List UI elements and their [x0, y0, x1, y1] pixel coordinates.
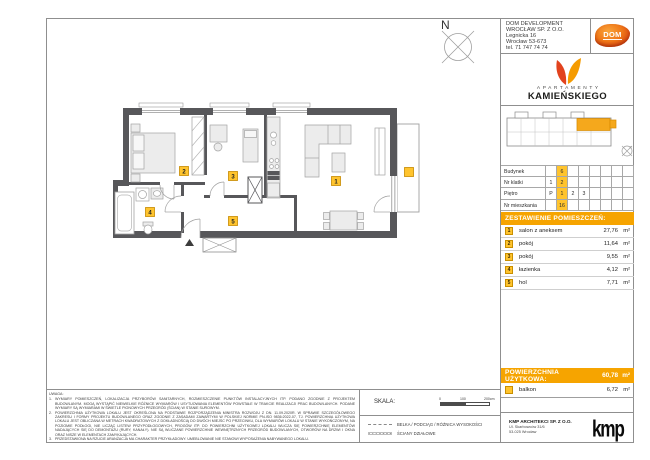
dom-logo-text: DOM: [603, 31, 621, 41]
info-panel: DOM DEVELOPMENT WROCŁAW SP. Z O.O. Legni…: [500, 18, 634, 443]
legend-item-belka: BELKA / PODCIĄG / RÓŻNICA WYSOKOŚCI: [368, 420, 500, 429]
unit-id-table: Budynek 6 Nr klatki 1 2 Piętro P 1 2 3 N…: [501, 165, 634, 212]
room-row-pokoj2: 2 pokój 11,64 m²: [501, 238, 634, 251]
notes-block: UWAGA: 1. WYMIARY POMIESZCZEŃ, LOKALIZAC…: [46, 389, 360, 443]
developer-header: DOM DEVELOPMENT WROCŁAW SP. Z O.O. Legni…: [501, 18, 634, 53]
table-row-mieszkanie: Nr mieszkania 16: [501, 200, 634, 212]
installation-shaft: [248, 177, 262, 203]
room-row-salon: 1 salon z aneksem 27,76 m²: [501, 225, 634, 238]
room-row-pokoj3: 3 pokój 9,55 m²: [501, 251, 634, 264]
furniture: [115, 117, 385, 234]
wardrobe: [192, 117, 204, 175]
note-item-3: 3. PRZEDSTAWIONA NA RZUCIE ARANŻACJA MA …: [49, 437, 355, 441]
entrance-arrow-icon: [185, 239, 194, 246]
usable-area-bar: POWIERZCHNIA UŻYTKOWA: 60,78 m²: [501, 368, 634, 383]
windows: [139, 103, 310, 115]
marker-salon: 1: [332, 177, 341, 186]
siteplan-unit-highlight: [577, 119, 616, 131]
legend-item-sciany: ŚCIANY DZIAŁOWE: [368, 429, 500, 438]
notes-title: UWAGA:: [49, 392, 355, 396]
dashed-line-swatch: [368, 424, 392, 425]
marker-balkon: [405, 168, 414, 177]
dom-logo-icon: DOM: [595, 24, 630, 47]
marker-lazienka: 4: [146, 208, 155, 217]
siteplan-block: [501, 105, 634, 165]
rooms-header-bar: ZESTAWIENIE POMIESZCZEŃ:: [501, 212, 634, 225]
rooms-section: ZESTAWIENIE POMIESZCZEŃ: 1 salon z aneks…: [501, 212, 634, 368]
usable-area-value: 60,78: [602, 372, 618, 379]
dom-logo-cell: DOM: [590, 18, 634, 53]
usable-area-unit: m²: [618, 372, 630, 379]
compass-label: N: [441, 18, 450, 32]
row-label: Nr mieszkania: [501, 200, 546, 212]
kmp-logo: kmp: [592, 417, 624, 443]
scale-label: SKALA:: [374, 399, 395, 405]
marker-pokoj-2: 2: [180, 167, 189, 176]
room-number-badge: 4: [505, 266, 513, 274]
brand-block: APARTAMENTY KAMIEŃSKIEGO: [501, 53, 634, 105]
brand-title: KAMIEŃSKIEGO: [501, 91, 634, 102]
row-label: Nr klatki: [501, 177, 546, 189]
table-row-klatka: Nr klatki 1 2: [501, 177, 634, 189]
siteplan-compass-icon: [619, 142, 635, 158]
room-number-badge: 1: [505, 227, 513, 235]
highlighted-cell: 16: [557, 200, 568, 212]
usable-area-title: POWIERZCHNIA UŻYTKOWA:: [505, 369, 602, 383]
room-number-badge: 5: [505, 279, 513, 287]
rooms-title: ZESTAWIENIE POMIESZCZEŃ:: [505, 215, 606, 222]
scale-block: SKALA: 0 100 200cm: [360, 389, 500, 415]
architect-section: KMP ARCHITEKCI SP. Z O.O. Ul. Skarbowców…: [501, 398, 634, 443]
brand-logo-icon: [555, 57, 581, 85]
marker-pokoj-3: 3: [229, 172, 238, 181]
hatch-swatch: [368, 432, 392, 436]
table-row-budynek: Budynek 6: [501, 165, 634, 177]
floor-plan: N: [46, 18, 500, 389]
room-number-badge: 3: [505, 253, 513, 261]
compass-icon: N: [441, 18, 474, 63]
note-item-2: 2. POWIERZCHNIA UŻYTKOWA LOKALU JEST OKR…: [49, 411, 355, 437]
highlighted-cell: 2: [557, 177, 568, 189]
table-row-pietro: Piętro P 1 2 3: [501, 188, 634, 200]
siteplan-map: [505, 110, 617, 154]
room-row-lazienka: 4 łazienka 4,12 m²: [501, 264, 634, 277]
row-label: Budynek: [501, 165, 546, 177]
legend-block: BELKA / PODCIĄG / RÓŻNICA WYSOKOŚCI ŚCIA…: [360, 415, 500, 443]
row-label: Piętro: [501, 188, 546, 200]
highlighted-cell: 6: [557, 165, 568, 177]
room-row-hol: 5 hol 7,71 m²: [501, 277, 634, 290]
balcony-door: [390, 176, 397, 212]
balkon-row: balkon 6,72 m²: [501, 383, 634, 398]
room-number-badge: 2: [505, 240, 513, 248]
scale-bar: 0 100 200cm: [440, 402, 490, 406]
highlighted-cell: 1: [557, 188, 568, 200]
marker-hol: 5: [229, 217, 238, 226]
balkon-badge: [505, 386, 513, 394]
note-item-1: 1. WYMIARY POMIESZCZEŃ, LOKALIZACJA PRZY…: [49, 397, 355, 410]
entrance-porch: [203, 238, 236, 252]
architect-box: KMP ARCHITEKCI SP. Z O.O. Ul. Skarbowców…: [501, 412, 634, 443]
summary-section: POWIERZCHNIA UŻYTKOWA: 60,78 m² balkon 6…: [501, 368, 634, 398]
